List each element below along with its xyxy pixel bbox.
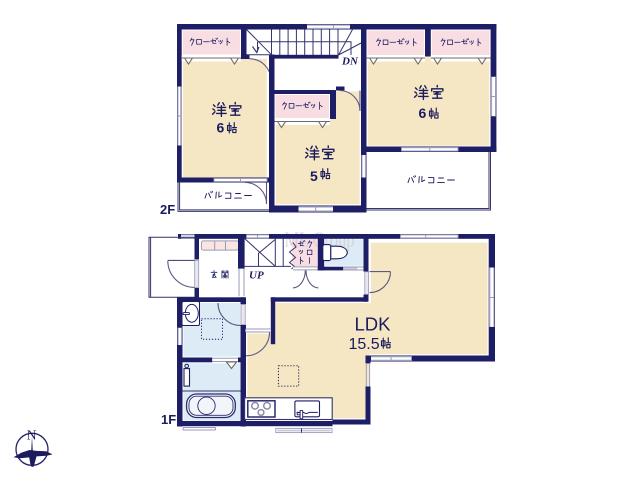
svg-text:DN: DN [341,55,359,67]
svg-text:6: 6 [217,120,225,136]
svg-text:N: N [27,428,37,443]
svg-text:2F: 2F [160,202,175,217]
svg-text:15.5: 15.5 [349,336,380,353]
svg-text:6: 6 [419,105,427,121]
svg-text:1F: 1F [161,412,176,427]
svg-text:UP: UP [249,270,264,282]
svg-text:5: 5 [310,168,318,184]
svg-text:LDK: LDK [355,314,392,335]
